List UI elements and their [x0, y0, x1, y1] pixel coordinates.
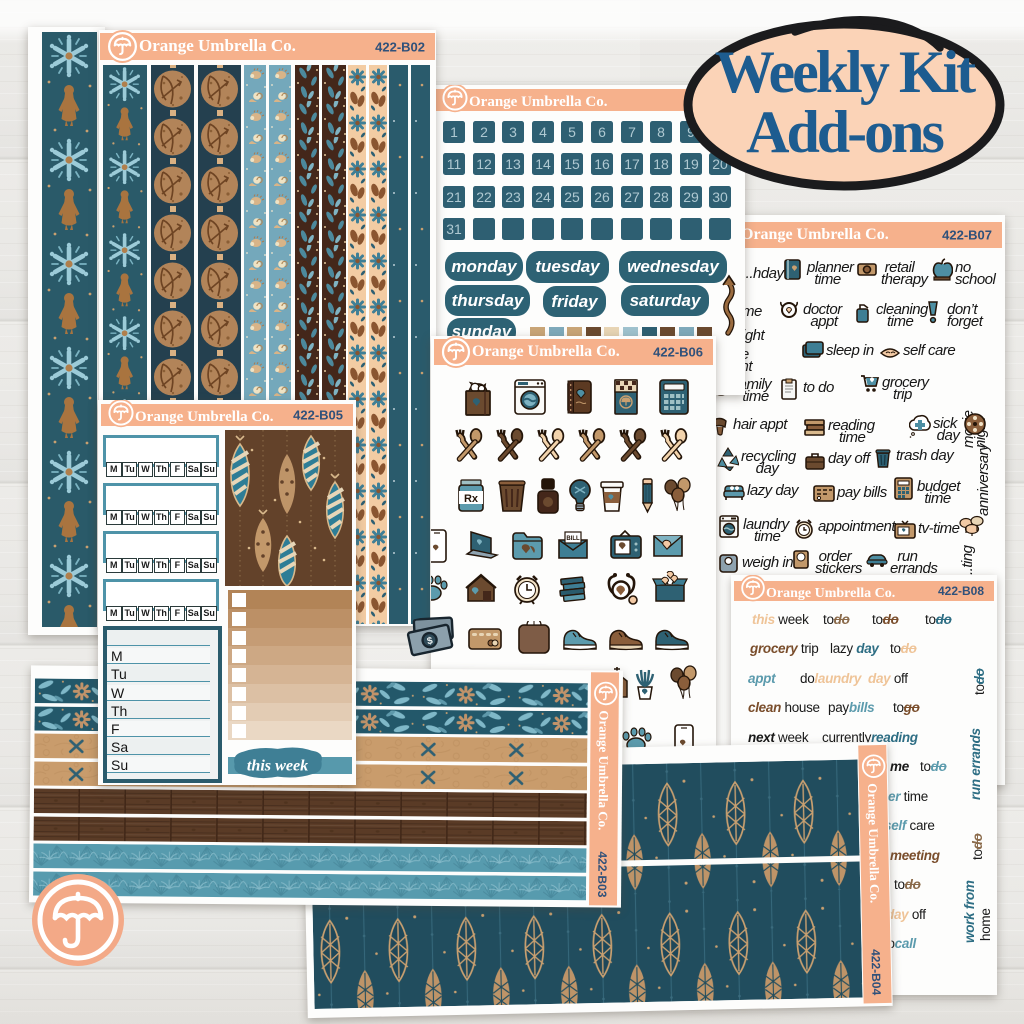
- svg-text:BILL: BILL: [566, 536, 580, 542]
- svg-text:Rx: Rx: [464, 493, 479, 505]
- svg-text:Add-ons: Add-ons: [746, 99, 943, 165]
- svg-text:Weekly Kit: Weekly Kit: [715, 39, 976, 105]
- svg-text:this week: this week: [247, 757, 308, 774]
